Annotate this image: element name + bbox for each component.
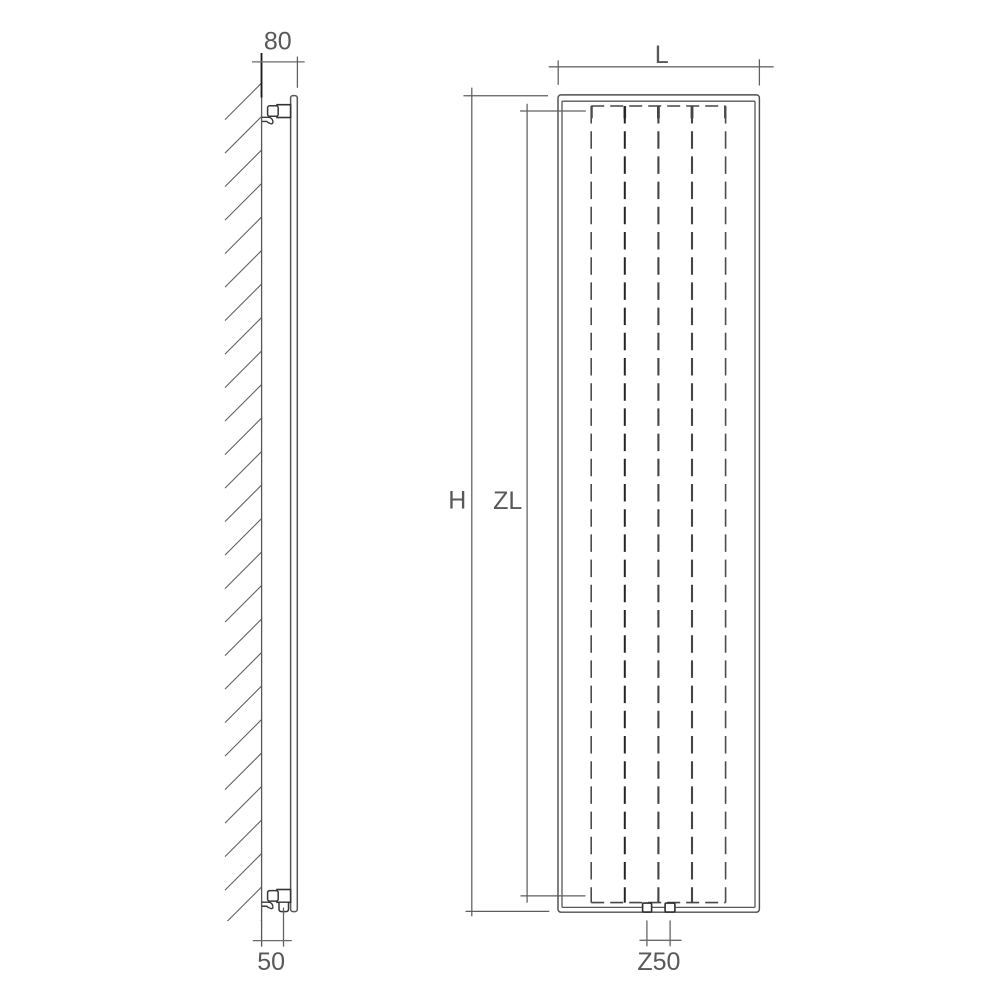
svg-text:50: 50 — [257, 948, 285, 976]
svg-text:H: H — [448, 487, 466, 515]
svg-text:ZL: ZL — [493, 487, 522, 515]
svg-text:L: L — [655, 41, 669, 69]
svg-text:80: 80 — [264, 27, 292, 55]
svg-text:Z50: Z50 — [637, 948, 680, 976]
